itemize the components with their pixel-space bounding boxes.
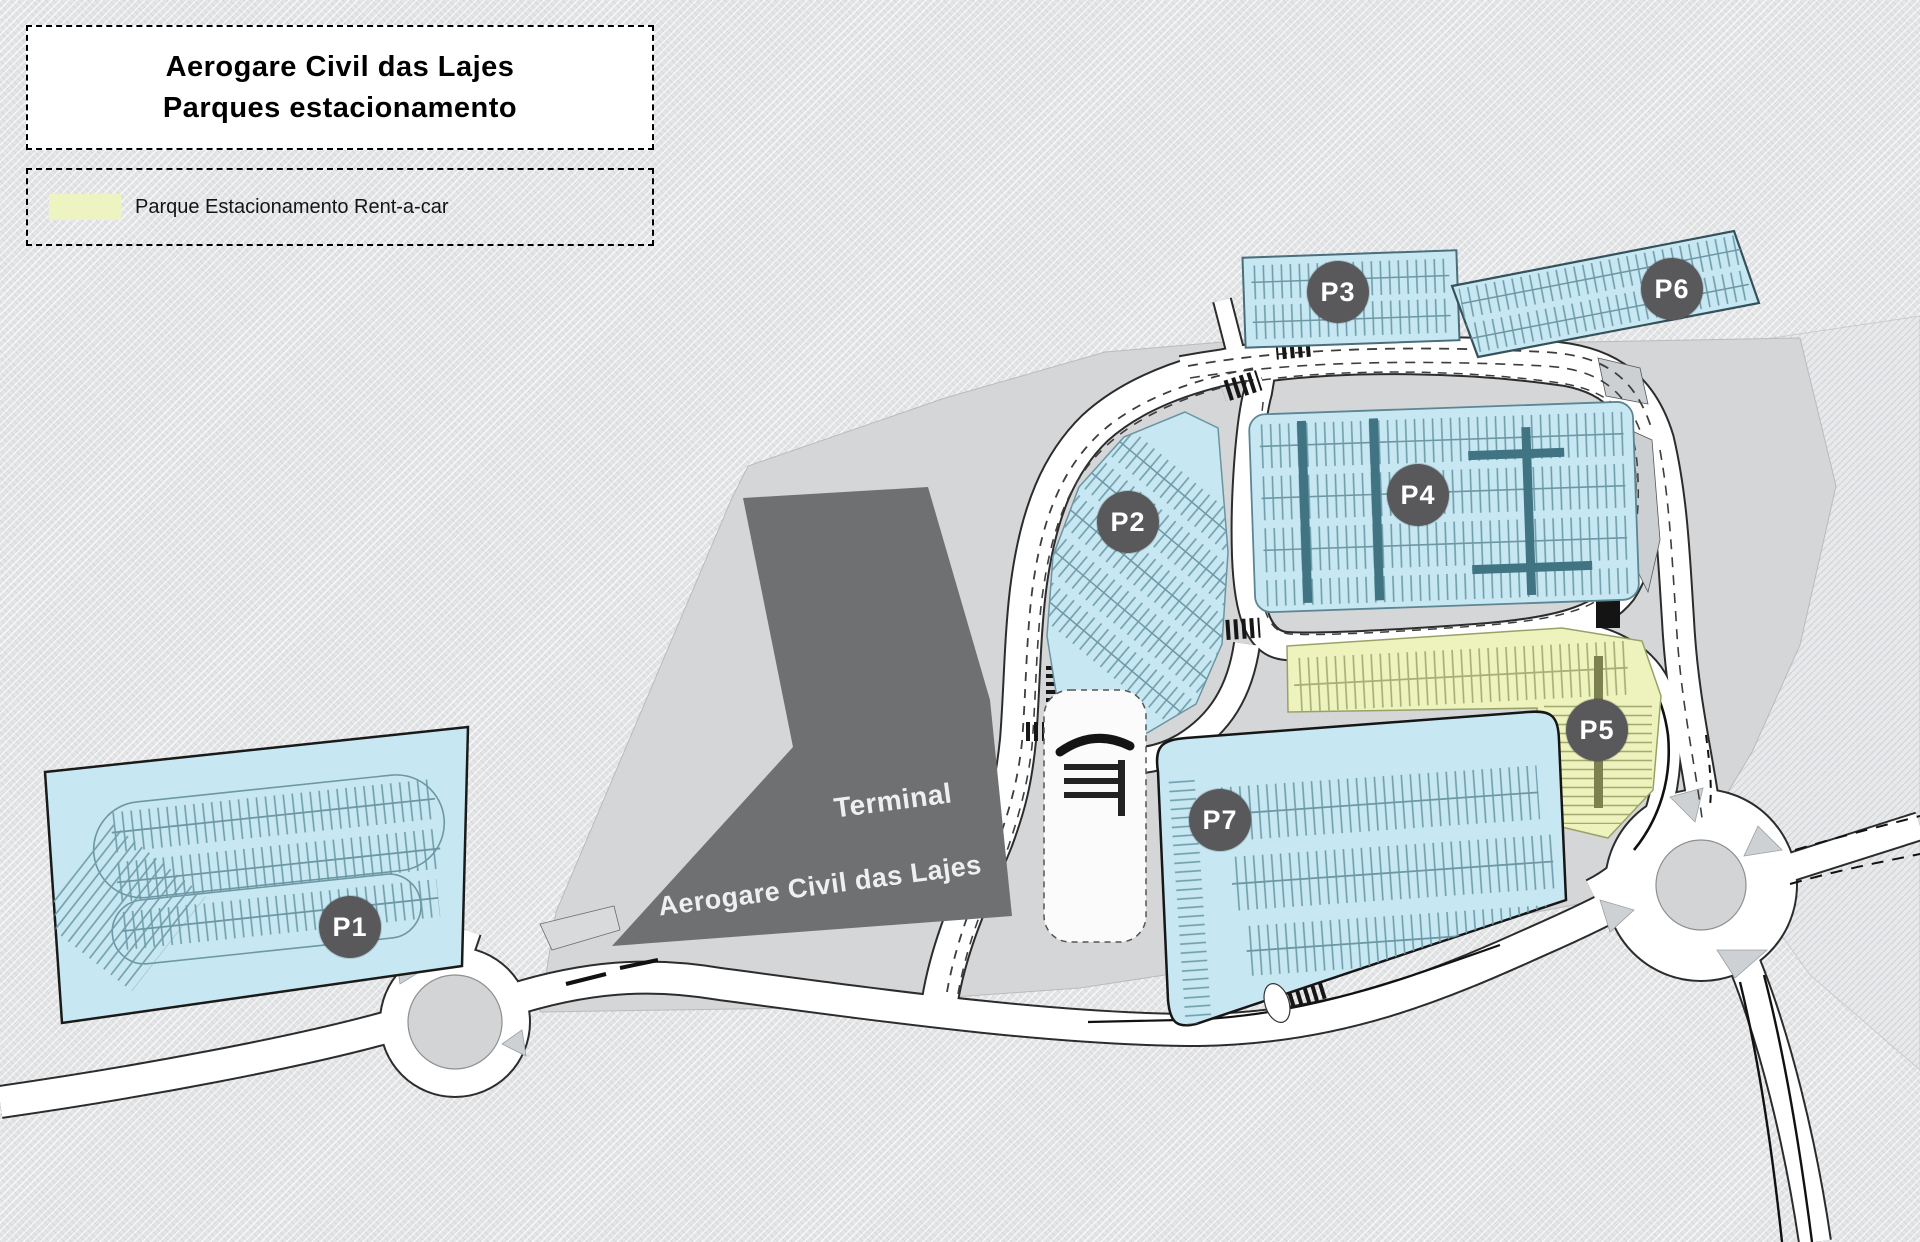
parking-badge-p4: P4 bbox=[1387, 464, 1449, 526]
roundabout-left bbox=[408, 975, 502, 1069]
map-title-box: Aerogare Civil das Lajes Parques estacio… bbox=[26, 25, 654, 150]
parking-lot-p7 bbox=[1157, 712, 1566, 1026]
legend-rentacar-swatch bbox=[49, 194, 121, 220]
legend-box: Parque Estacionamento Rent-a-car bbox=[26, 168, 654, 246]
parking-badge-p1: P1 bbox=[319, 896, 381, 958]
parking-badge-p6: P6 bbox=[1641, 258, 1703, 320]
parking-badge-p3: P3 bbox=[1307, 261, 1369, 323]
map-title-line2: Parques estacionamento bbox=[163, 88, 517, 129]
map-title-line1: Aerogare Civil das Lajes bbox=[166, 47, 515, 88]
parking-badge-p2: P2 bbox=[1097, 491, 1159, 553]
parking-badge-p5: P5 bbox=[1566, 699, 1628, 761]
airport-parking-map: Aerogare Civil das Lajes Parques estacio… bbox=[0, 0, 1920, 1242]
dropoff-area bbox=[1044, 690, 1146, 942]
parking-lot-p6 bbox=[1452, 231, 1759, 357]
parking-badge-p7: P7 bbox=[1189, 789, 1251, 851]
roundabout-right bbox=[1656, 840, 1746, 930]
legend-rentacar-label: Parque Estacionamento Rent-a-car bbox=[135, 196, 449, 219]
